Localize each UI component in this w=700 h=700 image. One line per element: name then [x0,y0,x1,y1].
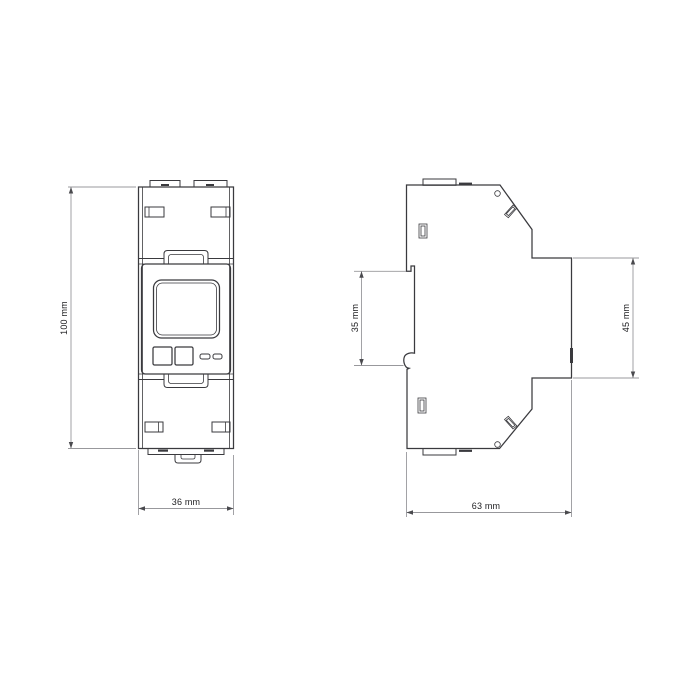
clip-tab-outer [164,374,208,388]
display-screen [157,283,217,335]
front-led-indicators [200,354,222,359]
arrowhead [69,442,73,449]
dimension-label-overall-width: 36 mm [172,497,201,507]
dimension-label-rail-recess-height: 35 mm [350,304,360,333]
front-view [139,181,234,464]
terminal-cover [423,179,456,185]
terminal-slot [212,422,230,432]
front-upper-terminal-slots [145,207,230,217]
screw-hole [495,442,501,448]
arrowhead [359,359,363,366]
front-bottom-clip-tab [139,374,234,388]
arrowhead [407,510,414,514]
rear-vent-slots [418,224,427,413]
display-window [154,280,220,338]
arrowhead [69,187,73,194]
clip-tab-inner [169,374,204,384]
dimension-annotations [68,187,639,517]
display-bezel [154,280,220,338]
terminal-cover-notch [161,184,169,186]
side-top-terminal-cover [423,179,472,185]
button-right [175,347,193,365]
terminal-cover [423,449,456,456]
front-buttons [153,347,193,365]
slider-tab-inner [181,455,195,460]
terminal-slot [145,422,163,432]
vent-slot [505,416,517,429]
vent-slot-inner [420,400,424,411]
terminal-slot [211,207,230,217]
side-view [404,179,573,455]
dimension-overall-height [68,187,136,449]
vent-slot [505,205,517,218]
bottom-plate-notch [158,450,168,452]
screw-hole [495,191,501,197]
dimension-label-overall-depth: 63 mm [472,501,501,511]
clip-tab-outer [164,251,208,265]
dimension-label-front-face-height: 45 mm [621,304,631,333]
bottom-plate-notch [204,450,214,452]
arrowhead [227,506,234,510]
arrowhead [631,372,635,379]
front-top-clip-tab [139,251,234,265]
arrowhead [139,506,146,510]
clip-tab-inner [169,255,204,265]
terminal-cover [194,181,227,188]
arrowhead [631,258,635,265]
arrowhead [359,271,363,278]
dimension-rail-recess-height [354,271,406,365]
chamfer-vent-slots [505,205,517,429]
front-lower-terminal-slots [145,422,230,432]
terminal-cover [150,181,180,188]
button-left [153,347,172,365]
arrowhead [565,510,572,514]
led-indicator [213,354,222,359]
terminal-slot [145,207,164,217]
terminal-cover-notch [206,184,214,186]
vent-slot-inner [421,226,425,236]
dimension-label-overall-height: 100 mm [59,301,69,335]
front-face-seam [570,348,573,363]
side-bottom-terminal-cover [423,449,472,456]
din-clip-slider [148,449,224,464]
front-top-terminal-covers [150,181,227,188]
technical-drawing-canvas [0,0,700,700]
drawing-page: 100 mm 36 mm 63 mm 45 mm 35 mm [0,0,700,700]
led-indicator [200,354,210,359]
side-profile-outline [404,185,572,449]
